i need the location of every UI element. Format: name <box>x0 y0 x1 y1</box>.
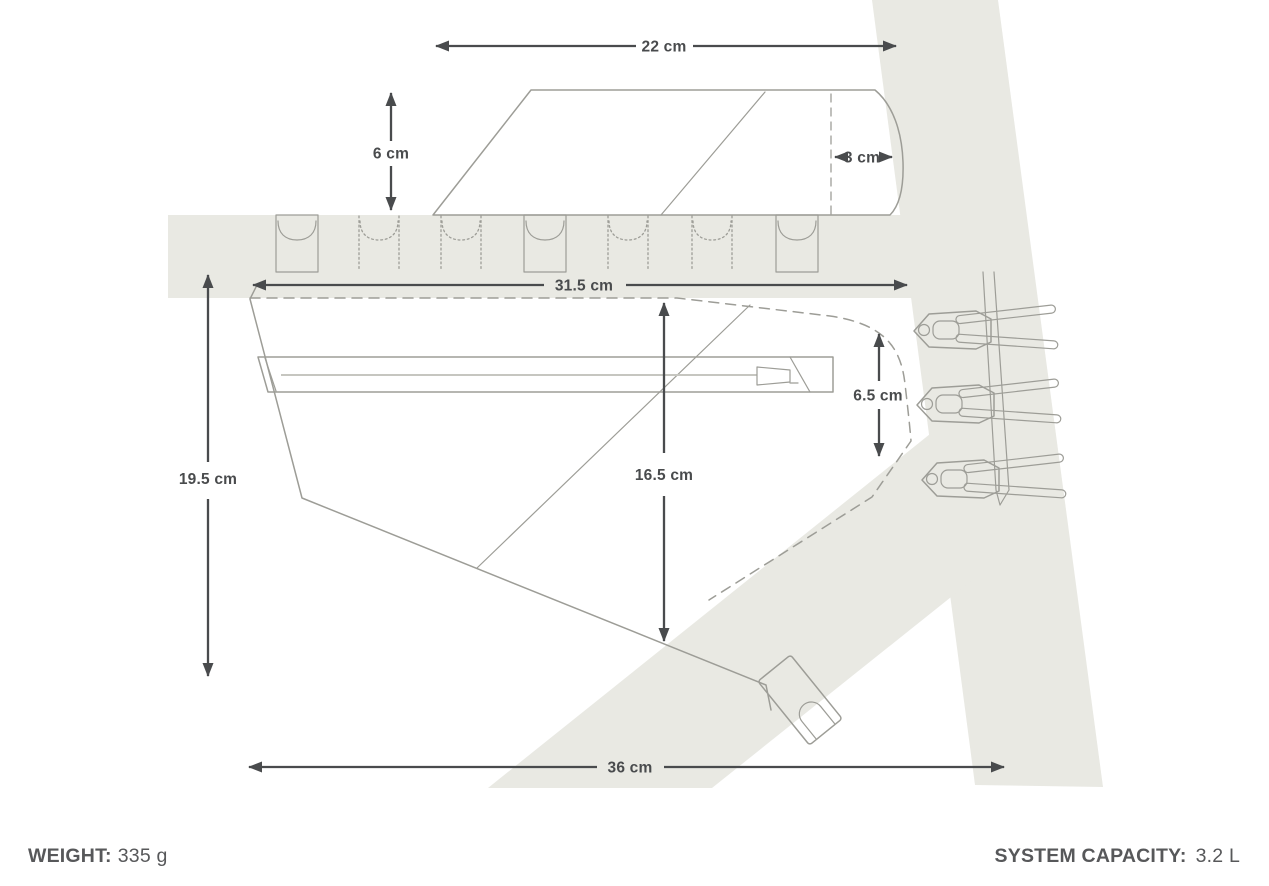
dim-center-height: 16.5 cm <box>635 303 693 641</box>
dim-label: 36 cm <box>608 760 653 777</box>
dim-label: 3 cm <box>844 150 880 167</box>
dim-top-width: 22 cm <box>436 39 896 56</box>
diagram-canvas: 22 cm 6 cm 3 cm 31.5 cm 6.5 cm <box>0 0 1269 886</box>
flap-outline <box>433 90 903 215</box>
spec-footer: WEIGHT:335 g SYSTEM CAPACITY:3.2 L <box>28 845 1240 867</box>
weight-value: 335 g <box>118 845 168 867</box>
dim-label: 16.5 cm <box>635 467 693 484</box>
dim-rear-height: 6.5 cm <box>853 334 902 456</box>
dim-front-height: 19.5 cm <box>179 275 237 676</box>
dim-label: 6.5 cm <box>853 388 902 405</box>
dim-flap-height: 6 cm <box>373 93 409 210</box>
weight-spec: WEIGHT:335 g <box>28 845 168 867</box>
weight-label: WEIGHT: <box>28 845 112 867</box>
bag-top-flap <box>433 90 903 215</box>
bag-seam <box>477 305 750 568</box>
bike-frame-silhouette <box>168 0 1103 788</box>
zipper-right-end <box>790 357 810 392</box>
dim-label: 19.5 cm <box>179 471 237 488</box>
flap-seam-line <box>661 92 765 215</box>
zipper <box>258 357 833 392</box>
dim-label: 6 cm <box>373 146 409 163</box>
dim-flap-inset: 3 cm <box>835 150 892 167</box>
frame-bag-dimension-diagram: 22 cm 6 cm 3 cm 31.5 cm 6.5 cm <box>0 0 1269 886</box>
zipper-pull <box>757 367 790 385</box>
dim-bottom-length: 36 cm <box>249 760 1004 777</box>
capacity-label: SYSTEM CAPACITY: <box>995 845 1187 867</box>
dimensions: 22 cm 6 cm 3 cm 31.5 cm 6.5 cm <box>179 39 1004 777</box>
capacity-value: 3.2 L <box>1196 845 1240 867</box>
capacity-spec: SYSTEM CAPACITY:3.2 L <box>995 845 1240 867</box>
dim-label: 31.5 cm <box>555 278 613 295</box>
dim-label: 22 cm <box>642 39 687 56</box>
